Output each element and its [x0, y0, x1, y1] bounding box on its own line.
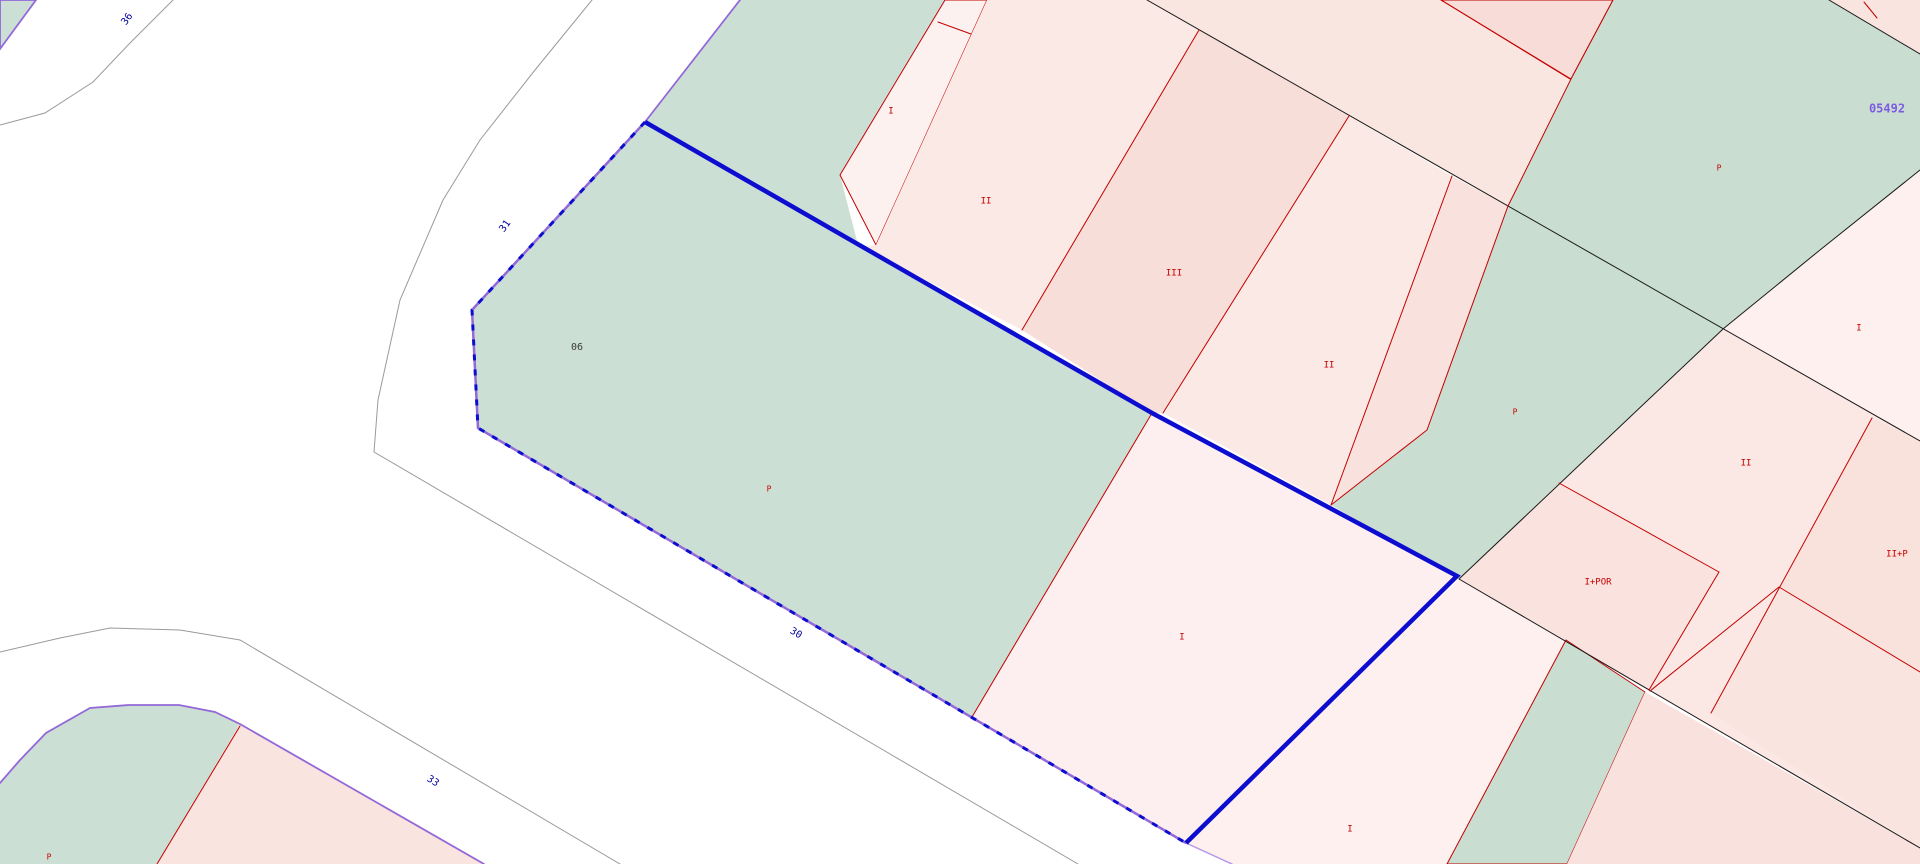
parcel-green-topleft-sliver[interactable] [0, 0, 36, 49]
construction-label-II-mid: II [1324, 361, 1335, 371]
construction-label-P-selected: P [767, 485, 772, 494]
construction-label-P-block: P [1717, 164, 1722, 173]
construction-label-I-east: I [1856, 324, 1861, 334]
construction-label-P-rounded: P [47, 853, 52, 862]
construction-label-III: III [1166, 269, 1182, 279]
construction-label-P-green: P [1513, 408, 1518, 417]
construction-label-II-left: II [981, 197, 992, 207]
construction-label-I-strip: I [888, 107, 893, 117]
street-number-36: 36 [119, 11, 135, 27]
construction-label-II-P: II+P [1886, 550, 1908, 560]
street-line-gray-1 [0, 0, 173, 125]
street-number-33: 33 [425, 774, 441, 790]
map-viewport[interactable]: 363130330605492IIIIIIIIPPPIIIII+PI+PORII… [0, 0, 1920, 864]
construction-label-I-POR: I+POR [1584, 578, 1612, 588]
construction-label-I-selected: I [1179, 633, 1184, 643]
cadastral-map-svg[interactable]: 363130330605492IIIIIIIIPPPIIIII+PI+PORII… [0, 0, 1920, 864]
street-number-30: 30 [788, 626, 804, 642]
street-number-31: 31 [497, 218, 513, 234]
construction-label-II-east: II [1741, 459, 1752, 469]
block-number-05492: 05492 [1869, 102, 1905, 116]
construction-label-I-south: I [1347, 825, 1352, 835]
parcel-number-06: 06 [571, 342, 583, 353]
